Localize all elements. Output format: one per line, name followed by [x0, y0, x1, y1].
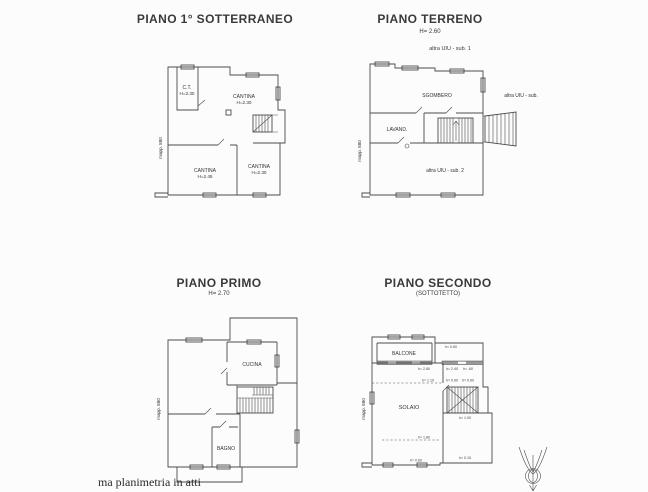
plan2-external-stairs [483, 112, 516, 146]
room-label-bagno: BAGNO [217, 446, 235, 452]
plan3-windows [186, 338, 299, 469]
plan3-walls [168, 318, 297, 482]
annotation-top-right: h= 0.60 [445, 345, 457, 349]
room-label-cucina: CUCINA [242, 362, 262, 368]
plan-subtitle-secondo: (SOTTOTETTO) [416, 291, 460, 297]
plan-title-secondo: PIANO SECONDO [384, 276, 491, 290]
room-height-cantina-right: H=2.30 [252, 170, 267, 175]
plan2-labels: SGOMBERO LAVAND. altra UIU - sub. 2 altr… [357, 93, 538, 174]
room-label-sgombero: SGOMBERO [422, 93, 452, 99]
annotation-row1-a: h= 2.80 [418, 367, 430, 371]
plan2-stairs [438, 118, 473, 143]
mapp-label-plan2: mapp. 880 [357, 140, 362, 162]
annotation-stairs: h= 1.00 [459, 416, 471, 420]
room-label-solaio: SOLAIO [399, 405, 420, 411]
plan1-stairs [253, 115, 278, 132]
annotation-row2-b: h= 0.60 [446, 379, 458, 383]
plan-height-terreno: H= 2.60 [419, 29, 440, 35]
plan-height-primo: H= 2.70 [208, 291, 229, 297]
north-arrow-icon [515, 443, 551, 492]
label-altra-uiu-sub-right: altra UIU - sub. [504, 93, 538, 99]
plan3-stairs [237, 387, 273, 413]
annotation-row1-c: h= .60 [463, 367, 473, 371]
plan-title-primo: PIANO PRIMO [176, 276, 261, 290]
footer-note: ma planimetria in atti [98, 475, 201, 490]
plan4-stairs [447, 387, 478, 413]
plan-primo-drawing: CUCINA BAGNO mapp. 880 [145, 310, 345, 492]
label-altra-uiu-sub1: altra UIU - sub. 1 [429, 46, 471, 52]
annotation-mid: h= 1.80 [418, 436, 430, 440]
mapp-label-plan1: mapp. 880 [158, 137, 163, 159]
plan3-labels: CUCINA BAGNO mapp. 880 [156, 362, 262, 452]
annotation-row1-b: h= 2.40 [446, 367, 458, 371]
mapp-label-plan3: mapp. 880 [156, 398, 161, 420]
mapp-label-plan4: mapp. 880 [361, 398, 366, 420]
room-label-balcone: BALCONE [392, 351, 417, 357]
room-height-ct: H=2.30 [180, 91, 195, 96]
annotation-bottom: h= 0.60 [410, 459, 422, 463]
plan-title-sotterraneo: PIANO 1° SOTTERRANEO [137, 12, 293, 26]
annotation-row2-a: h= 1.10 [422, 379, 434, 383]
plan-sotterraneo-drawing: C.T. H=2.30 CANTINA H=2.30 CANTINA H=2.4… [140, 55, 340, 215]
room-label-lavanderia: LAVAND. [387, 127, 408, 133]
room-height-cantina-left: H=2.45 [198, 174, 213, 179]
plan-terreno-drawing: SGOMBERO LAVAND. altra UIU - sub. 2 altr… [350, 55, 570, 215]
plan4-walls [362, 337, 492, 467]
annotation-bottom-right: h= 0.15 [459, 456, 471, 460]
label-altra-uiu-sub2: altra UIU - sub. 2 [426, 168, 464, 174]
floorplan-sheet: PIANO 1° SOTTERRANEO PIANO TERRENO H= 2.… [0, 0, 648, 492]
room-height-cantina-top: H=2.30 [237, 100, 252, 105]
plan-title-terreno: PIANO TERRENO [377, 12, 482, 26]
annotation-row2-c: h= 0.60 [462, 379, 474, 383]
